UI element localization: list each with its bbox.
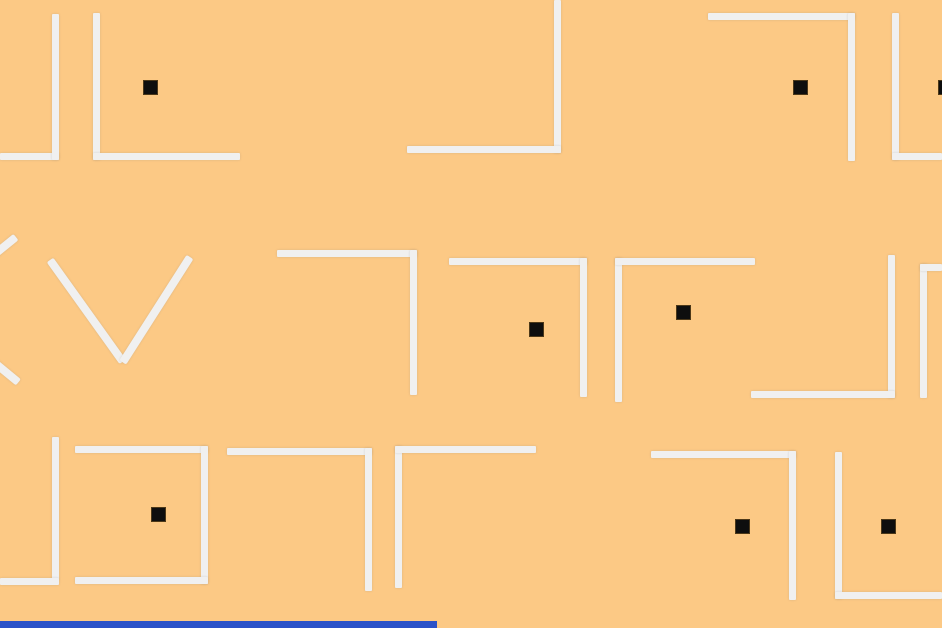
wall-segment — [227, 448, 372, 455]
wall-segment — [410, 250, 417, 395]
wall-diagonal-segment — [0, 305, 21, 385]
pellet — [735, 519, 750, 534]
wall-segment — [0, 153, 59, 160]
wall-diagonal-segment — [47, 258, 127, 365]
wall-segment — [848, 13, 855, 161]
pellet — [881, 519, 896, 534]
wall-segment — [789, 451, 796, 600]
wall-segment — [708, 13, 855, 20]
wall-segment — [93, 13, 100, 160]
wall-segment — [93, 153, 240, 160]
accent-bar — [0, 621, 437, 628]
wall-segment — [52, 14, 59, 160]
pellet — [143, 80, 158, 95]
wall-segment — [888, 255, 895, 398]
wall-segment — [920, 264, 927, 398]
wall-segment — [751, 391, 895, 398]
wall-segment — [920, 264, 942, 271]
wall-segment — [554, 0, 561, 153]
wall-segment — [835, 592, 942, 599]
pellet — [676, 305, 691, 320]
wall-segment — [407, 146, 561, 153]
wall-diagonal-segment — [120, 255, 194, 364]
wall-diagonal-segment — [0, 234, 19, 311]
pellet — [938, 80, 942, 95]
wall-segment — [892, 153, 942, 160]
wall-segment — [615, 258, 755, 265]
wall-segment — [0, 578, 59, 585]
pellet — [793, 80, 808, 95]
wall-segment — [75, 446, 208, 453]
wall-segment — [449, 258, 587, 265]
wall-segment — [835, 452, 842, 599]
wall-segment — [277, 250, 417, 257]
wall-segment — [615, 258, 622, 402]
game-scene — [0, 0, 942, 628]
wall-segment — [580, 258, 587, 397]
pellet — [529, 322, 544, 337]
wall-segment — [75, 577, 208, 584]
wall-segment — [395, 446, 536, 453]
wall-segment — [365, 448, 372, 591]
wall-segment — [52, 437, 59, 580]
wall-segment — [395, 446, 402, 588]
pellet — [151, 507, 166, 522]
wall-segment — [892, 13, 899, 160]
wall-segment — [201, 446, 208, 584]
wall-segment — [651, 451, 796, 458]
